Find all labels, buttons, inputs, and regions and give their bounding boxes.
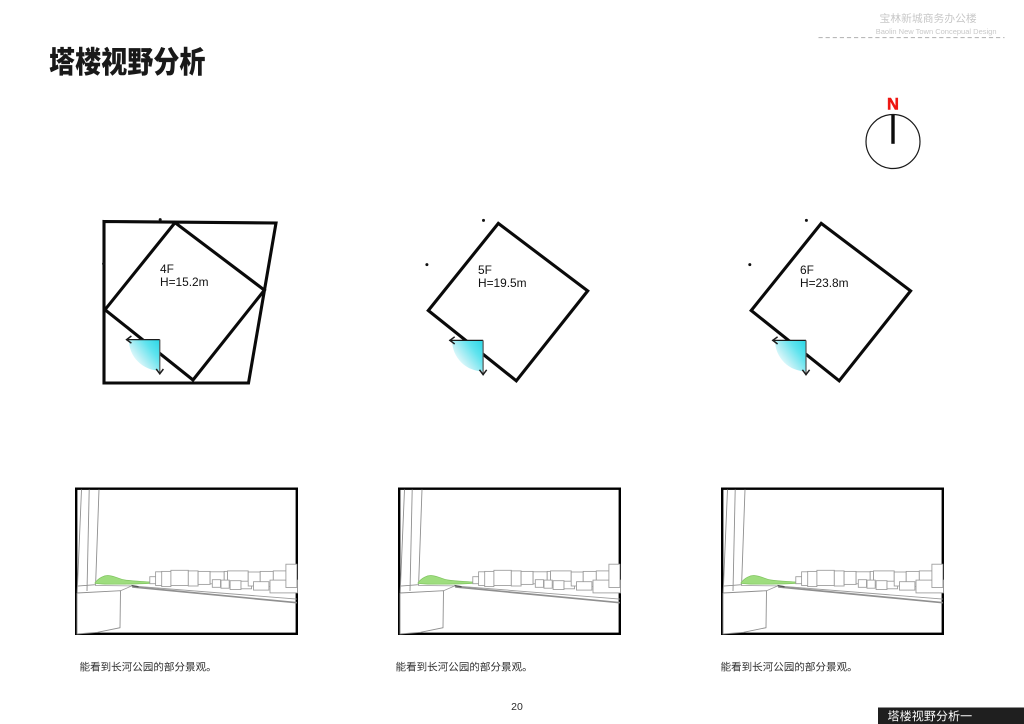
svg-text:5F: 5F <box>478 263 492 277</box>
svg-text:Baolin New Town Concepual Desi: Baolin New Town Concepual Design <box>876 27 997 36</box>
svg-text:20: 20 <box>511 701 523 713</box>
svg-text:4F: 4F <box>160 262 174 276</box>
svg-text:H=23.8m: H=23.8m <box>800 276 849 290</box>
svg-text:H=19.5m: H=19.5m <box>478 276 527 290</box>
svg-text:N: N <box>887 96 899 114</box>
svg-text:H=15.2m: H=15.2m <box>160 275 209 289</box>
svg-text:6F: 6F <box>800 263 814 277</box>
